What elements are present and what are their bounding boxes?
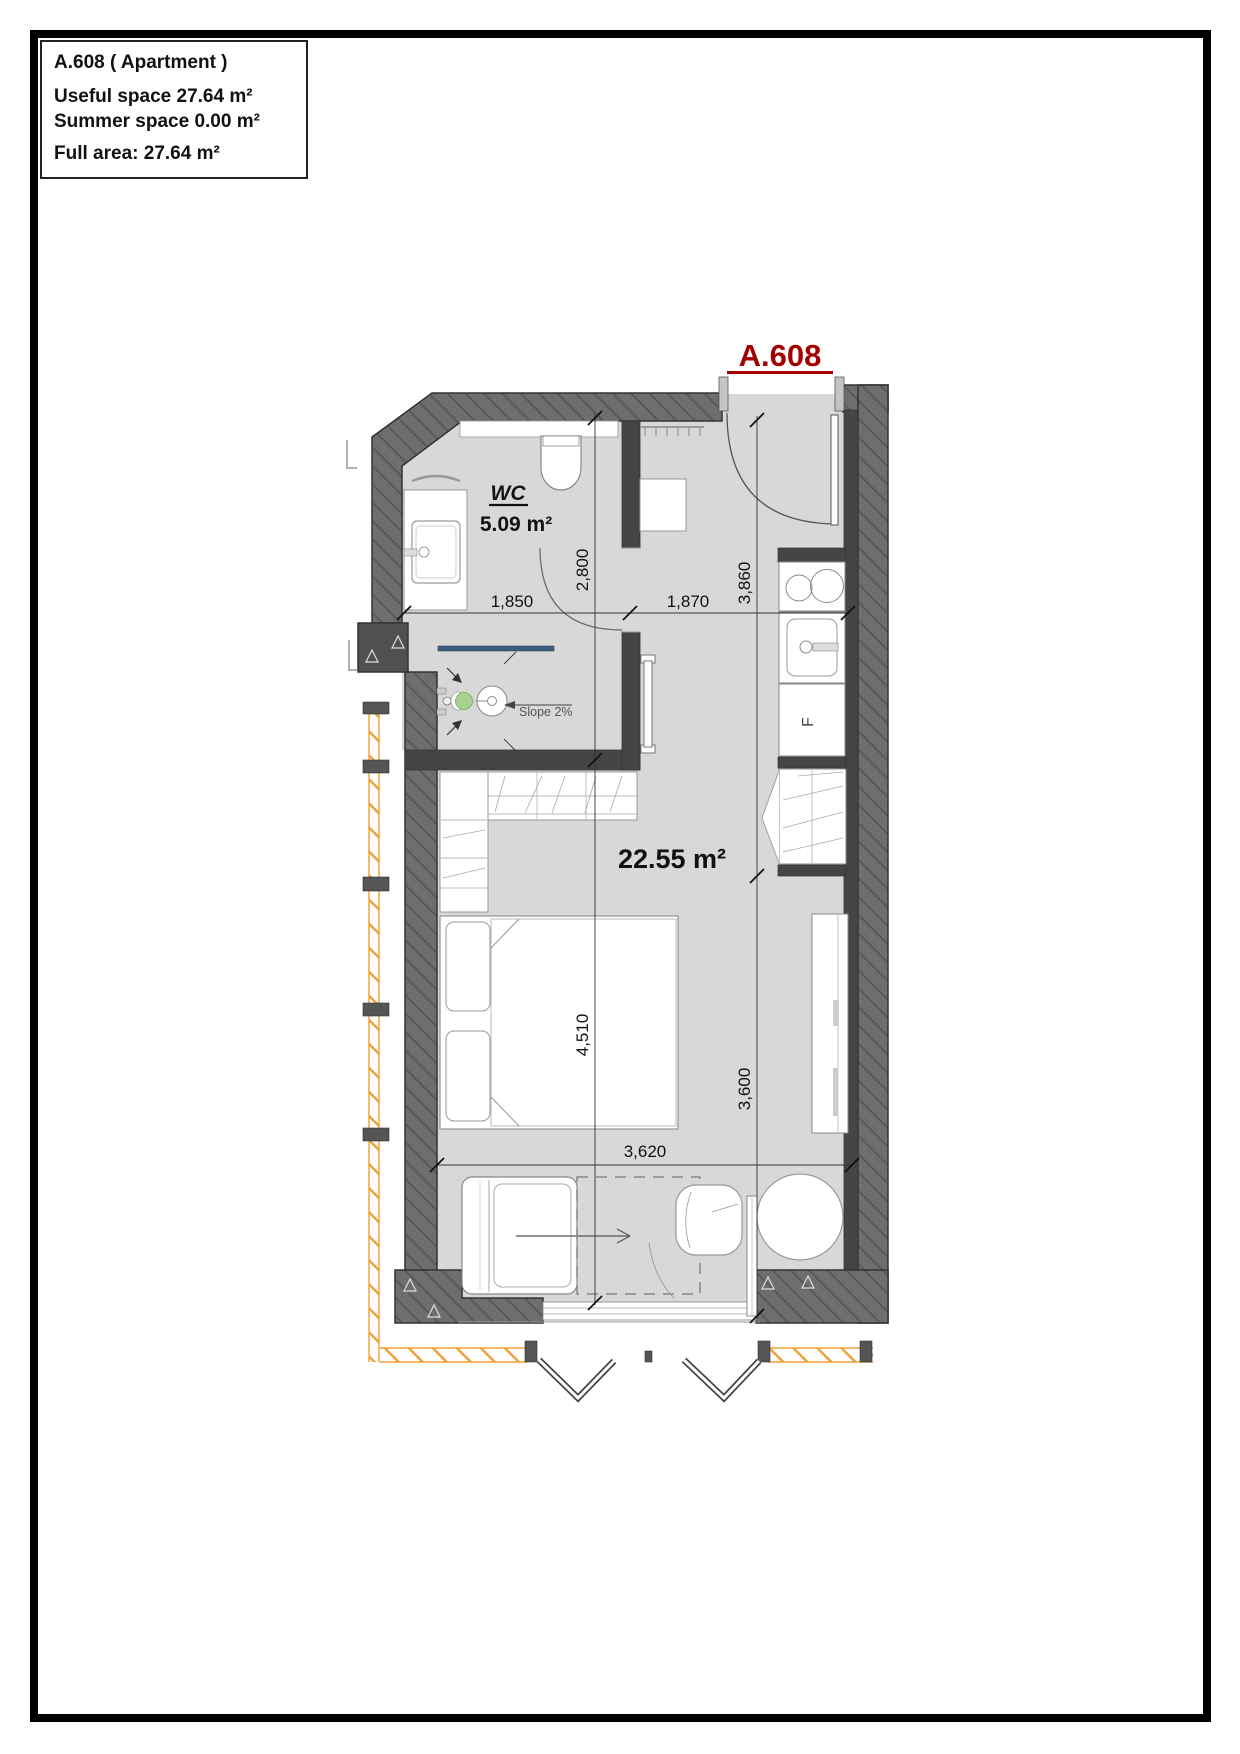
wall-wc-partition-upper [622, 421, 640, 548]
dim-room-right-depth: 3,600 [735, 1068, 754, 1111]
pillow [446, 922, 490, 1011]
wall-wc-partition-lower [622, 632, 640, 770]
unit-title-underline [727, 371, 833, 374]
neighbor-wall-mark [349, 640, 357, 670]
fridge-label: F [800, 717, 817, 727]
shower-valve [437, 688, 446, 694]
kitchen-divider-mid [778, 757, 846, 768]
balcony-rail-bottom [380, 1348, 873, 1362]
faucet [404, 549, 417, 556]
shower-glass-screen [438, 646, 554, 651]
balcony-door-swing-symbols [539, 1360, 759, 1398]
dim-room-width: 3,620 [624, 1142, 667, 1161]
main-room-area: 22.55 m² [618, 844, 726, 874]
entry-recess-floor [728, 394, 835, 412]
dim-hall-width: 1,870 [667, 592, 710, 611]
dim-room-depth: 4,510 [573, 1014, 592, 1057]
floor-plan-drawing: F [0, 0, 1240, 1754]
entry-door-leaf [831, 415, 838, 525]
wall-bottom-right-block [756, 1270, 888, 1323]
wall-right [858, 385, 888, 1323]
dim-wc-depth: 2,800 [573, 549, 592, 592]
kitchen-divider-top [778, 548, 846, 562]
kitchen-divider-bottom [778, 865, 846, 876]
wc-niche [460, 421, 618, 437]
wc-room-area: 5.09 m² [480, 513, 552, 536]
entry-door-post-right [835, 377, 844, 411]
round-table [757, 1174, 843, 1260]
unit-title: A.608 [739, 338, 822, 373]
hall-cabinet [640, 479, 686, 531]
floor-plan-page: A.608 ( Apartment ) Useful space 27.64 m… [0, 0, 1240, 1754]
wall-wc-bottom [405, 750, 640, 770]
dim-entry-depth: 3,860 [735, 562, 754, 605]
entry-door-post-left [719, 377, 728, 411]
tv-sideboard [812, 914, 848, 1133]
neighbor-wall-mark [347, 440, 357, 468]
wardrobe [762, 769, 846, 864]
wc-room-name: WC [491, 482, 527, 505]
pillow [446, 1031, 490, 1121]
chair [676, 1185, 742, 1255]
dim-wc-width: 1,850 [491, 592, 534, 611]
shower-head-point [456, 693, 473, 710]
balcony-rail-left [369, 705, 379, 1362]
toilet-tank [543, 436, 579, 446]
slope-label: Slope 2% [519, 705, 573, 719]
bed [440, 916, 678, 1129]
